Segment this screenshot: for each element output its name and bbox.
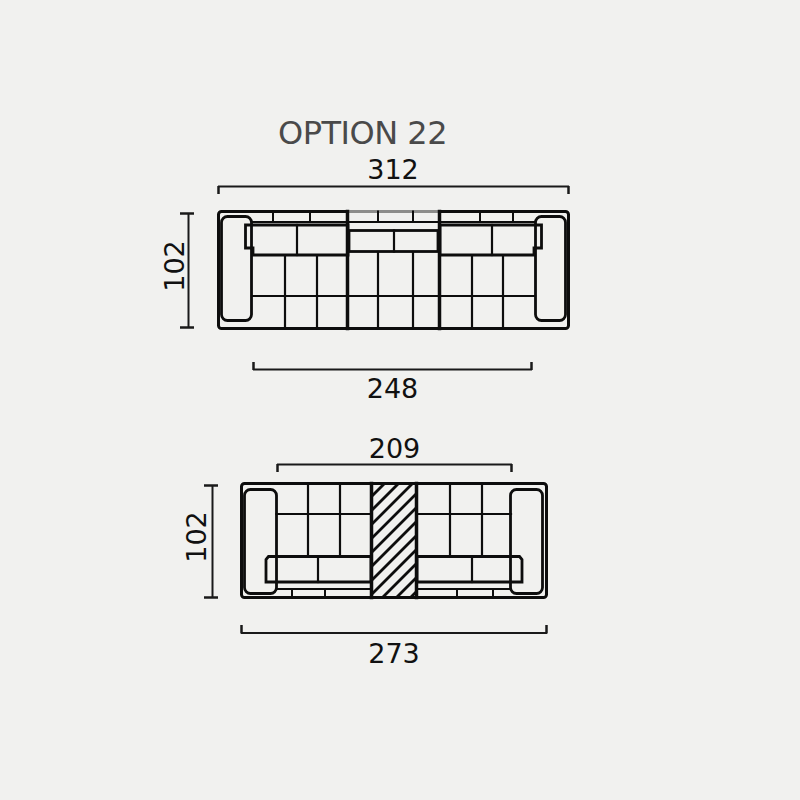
dim-line-seat-width-a — [253, 362, 532, 370]
page-title: OPTION 22 — [278, 114, 447, 152]
dim-label-depth-b: 102 — [181, 511, 212, 563]
dim-label-depth-a: 102 — [159, 240, 190, 292]
dim-line-overall-width-a — [218, 186, 569, 194]
dim-label-overall-width-b: 273 — [368, 638, 420, 669]
sofa-a-right-armrest — [536, 217, 566, 321]
sofa-a-outline — [219, 212, 569, 329]
sofa-plan-lower — [242, 484, 547, 598]
dim-line-inner-width-b — [277, 464, 512, 472]
sofa-a-dimensions — [180, 186, 569, 370]
sofa-b-left-armrest — [245, 490, 277, 594]
sofa-b-right-armrest — [511, 490, 543, 594]
sofa-a-back-strip — [252, 212, 535, 223]
dim-label-overall-width-a: 312 — [367, 154, 419, 185]
sofa-plan-upper — [219, 212, 569, 329]
dim-line-overall-width-b — [241, 625, 547, 634]
technical-drawing-page: OPTION 22 — [0, 0, 800, 800]
dim-label-inner-width-b: 209 — [369, 433, 421, 464]
sofa-b-hatched-element — [372, 484, 417, 598]
sofa-a-back-cushions — [246, 225, 542, 255]
dim-label-seat-width-a: 248 — [367, 373, 419, 404]
sofa-a-seat-grid — [252, 252, 535, 328]
sofa-a-left-armrest — [222, 217, 252, 321]
sofa-plan-svg: OPTION 22 — [0, 0, 800, 800]
hatch-lines — [372, 484, 416, 597]
sofa-a-module-separators — [348, 212, 440, 329]
sofa-b-back-cushions — [266, 557, 522, 583]
